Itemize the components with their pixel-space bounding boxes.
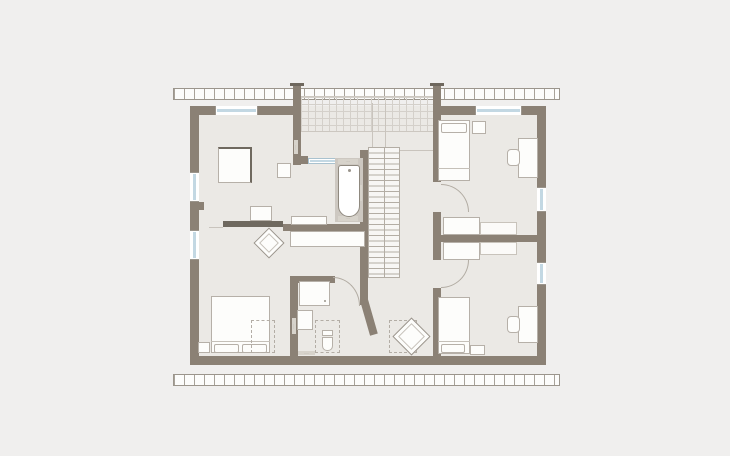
wall-bottom	[190, 356, 546, 365]
window-right-upper	[537, 187, 546, 212]
wall-right-b	[537, 212, 546, 262]
hall-wardrobe	[290, 231, 365, 247]
wall-bath-stub	[300, 156, 308, 164]
wc-cistern	[322, 330, 333, 336]
master-dashed-rug	[251, 320, 275, 353]
bath-glass-partition	[308, 158, 338, 164]
bathtub-faucet-icon	[348, 169, 351, 172]
window-left-lower	[190, 230, 199, 260]
staircase	[368, 147, 400, 278]
wall-divider-east-rooms	[441, 235, 537, 242]
dressing-chair-seat	[259, 233, 279, 253]
wall-hall-east-b	[433, 212, 441, 260]
gallery-line-b	[385, 103, 386, 150]
wall-right-a	[537, 106, 546, 187]
wall-left-notch	[199, 202, 204, 210]
se-chair	[507, 316, 520, 333]
wall-right-c	[537, 285, 546, 365]
bath-vanity	[291, 216, 327, 225]
ne-nightstand	[472, 121, 486, 134]
window-right-lower	[537, 262, 546, 285]
dressing-desk	[223, 221, 283, 227]
wall-left-b	[190, 202, 199, 230]
dressing-shelf-line	[209, 227, 223, 228]
micro-stamp-tub-top: ·····	[338, 159, 358, 164]
micro-stamp-wc-bottom: ·····	[298, 351, 315, 355]
se-desk	[518, 306, 538, 343]
landing-edge-line	[400, 150, 433, 151]
ne-pillow	[441, 123, 467, 133]
nw-wardrobe	[218, 147, 252, 183]
master-bench	[198, 342, 210, 353]
floor-plan-canvas: ····· ····· ····· ····· ····· ·····	[0, 0, 730, 456]
window-left-upper	[190, 172, 199, 202]
dormer-stub-left	[293, 86, 301, 106]
gallery-line-a	[372, 103, 373, 150]
staircase-center-divider	[384, 148, 385, 277]
micro-stamp-dormer: ·····	[294, 140, 298, 154]
se-bench	[470, 345, 485, 355]
wc-washbasin	[297, 310, 313, 330]
nw-wall-cabinet	[277, 163, 291, 178]
ne-bed-divider	[438, 168, 470, 169]
se-bed-divider	[438, 341, 470, 342]
ne-closet-b	[480, 222, 517, 235]
wall-left-a	[190, 106, 199, 172]
se-pillow	[441, 344, 465, 353]
gallery-grid	[301, 96, 433, 132]
se-closet-a	[443, 242, 480, 260]
roof-edge-band-bottom	[173, 374, 560, 386]
bathtub	[338, 165, 360, 217]
wc-bowl	[322, 337, 333, 351]
ne-chair	[507, 149, 520, 166]
wall-bath-south	[283, 224, 367, 231]
shower	[299, 281, 330, 306]
window-top-right	[475, 106, 522, 115]
ne-desk	[518, 138, 538, 178]
dressing-desk-laptop	[250, 206, 272, 221]
master-pillow-left	[214, 344, 239, 353]
shower-drain-icon	[324, 300, 326, 302]
micro-stamp-wc-side: ·····	[292, 318, 296, 334]
window-top-left	[215, 106, 258, 115]
landing-armchair-seat	[398, 323, 425, 350]
ne-closet-a	[443, 217, 480, 235]
dormer-stub-right	[433, 86, 441, 106]
se-closet-b	[480, 242, 517, 255]
